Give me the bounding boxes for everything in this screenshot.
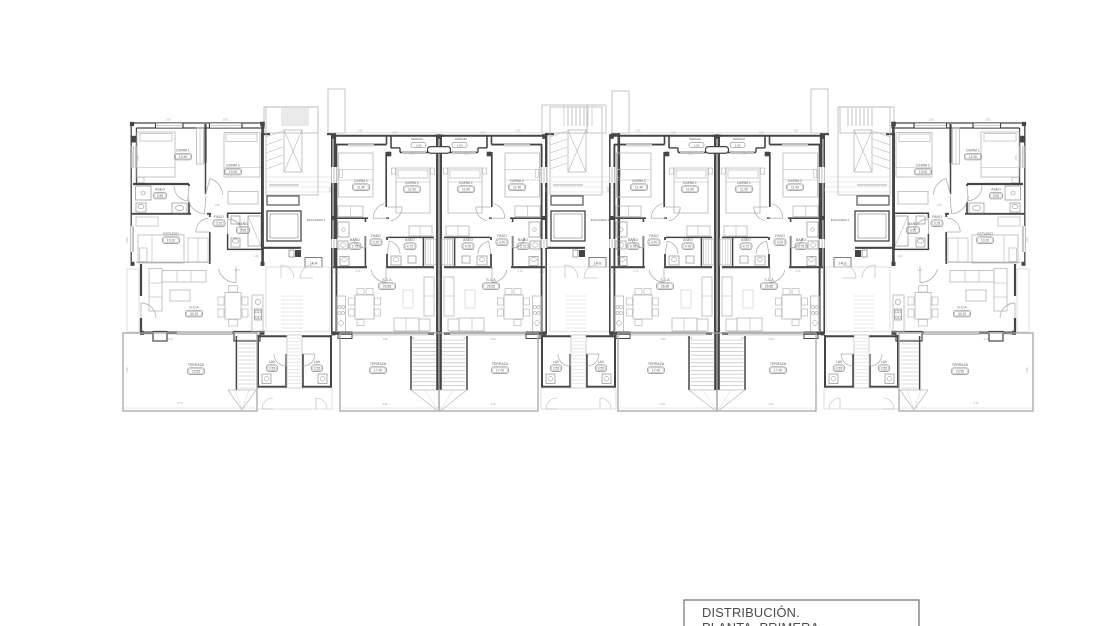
svg-text:3.25: 3.25 bbox=[216, 222, 223, 226]
svg-text:PASO: PASO bbox=[497, 234, 507, 238]
svg-text:3.25: 3.25 bbox=[934, 222, 941, 226]
svg-text:2.00: 2.00 bbox=[671, 132, 676, 135]
svg-text:BAÑO: BAÑO bbox=[350, 237, 360, 242]
svg-text:1.40: 1.40 bbox=[917, 269, 922, 272]
svg-text:ASEO: ASEO bbox=[155, 188, 165, 192]
svg-text:LAV: LAV bbox=[553, 360, 560, 364]
svg-text:DISTRIBUCIÓN.: DISTRIBUCIÓN. bbox=[702, 605, 800, 620]
svg-text:ESTUDIO: ESTUDIO bbox=[163, 232, 179, 236]
svg-text:4.70: 4.70 bbox=[407, 245, 414, 249]
svg-text:11.40: 11.40 bbox=[635, 186, 643, 190]
svg-text:TERRAZA: TERRAZA bbox=[492, 362, 509, 366]
svg-text:TERRAZA: TERRAZA bbox=[188, 363, 205, 367]
svg-text:11.40: 11.40 bbox=[357, 186, 365, 190]
svg-text:4.70: 4.70 bbox=[685, 245, 692, 249]
svg-text:2.00: 2.00 bbox=[481, 132, 486, 135]
svg-text:BAÑO: BAÑO bbox=[908, 221, 918, 226]
svg-text:1.40: 1.40 bbox=[235, 269, 240, 272]
svg-text:PASO: PASO bbox=[932, 215, 942, 219]
svg-text:17.00: 17.00 bbox=[652, 369, 660, 373]
svg-text:TERRAZA: TERRAZA bbox=[689, 137, 701, 141]
svg-text:PASO: PASO bbox=[214, 215, 224, 219]
svg-text:1.40: 1.40 bbox=[254, 255, 259, 258]
svg-text:LAV: LAV bbox=[269, 360, 276, 364]
svg-text:10.20: 10.20 bbox=[167, 239, 175, 243]
svg-text:11.90: 11.90 bbox=[408, 188, 416, 192]
svg-text:3.55: 3.55 bbox=[598, 367, 605, 371]
svg-text:ESCALERA 3: ESCALERA 3 bbox=[307, 218, 326, 222]
svg-text:S.C.A: S.C.A bbox=[957, 306, 967, 310]
svg-text:3.95: 3.95 bbox=[240, 229, 247, 233]
svg-text:ASEO: ASEO bbox=[405, 238, 415, 242]
svg-text:4.00: 4.00 bbox=[329, 187, 332, 192]
svg-text:4.05: 4.05 bbox=[1015, 155, 1018, 160]
svg-text:DORM 2: DORM 2 bbox=[510, 179, 524, 183]
svg-text:3.90: 3.90 bbox=[769, 338, 774, 341]
svg-text:2.40: 2.40 bbox=[742, 153, 747, 156]
svg-text:1.40: 1.40 bbox=[898, 255, 903, 258]
svg-text:11.90: 11.90 bbox=[462, 188, 470, 192]
svg-text:5.40: 5.40 bbox=[383, 403, 388, 406]
svg-text:2.75: 2.75 bbox=[634, 270, 639, 273]
svg-text:3.75: 3.75 bbox=[798, 245, 805, 249]
svg-text:TERRAZA: TERRAZA bbox=[455, 137, 467, 141]
svg-text:1.40: 1.40 bbox=[334, 271, 339, 274]
svg-text:DORM 2: DORM 2 bbox=[226, 164, 240, 168]
svg-text:ASEO: ASEO bbox=[991, 188, 1001, 192]
svg-text:23.55: 23.55 bbox=[956, 370, 964, 374]
svg-text:34.10: 34.10 bbox=[190, 312, 198, 316]
svg-text:1.40: 1.40 bbox=[818, 271, 823, 274]
svg-text:ESCALERA 1: ESCALERA 1 bbox=[831, 218, 850, 222]
svg-text:S.C.A: S.C.A bbox=[486, 278, 496, 282]
svg-text:4.10: 4.10 bbox=[984, 338, 989, 341]
svg-text:4.10: 4.10 bbox=[168, 338, 173, 341]
svg-text:3.55: 3.55 bbox=[269, 367, 276, 371]
svg-text:1.40: 1.40 bbox=[612, 271, 617, 274]
svg-text:TERRAZA: TERRAZA bbox=[370, 362, 387, 366]
svg-text:PASO: PASO bbox=[775, 234, 785, 238]
svg-text:ASEO: ASEO bbox=[463, 238, 473, 242]
svg-text:LAV: LAV bbox=[598, 360, 605, 364]
svg-text:1.00: 1.00 bbox=[457, 144, 463, 148]
svg-text:LAV: LAV bbox=[314, 360, 321, 364]
svg-text:4.90: 4.90 bbox=[126, 367, 129, 372]
svg-text:10.00: 10.00 bbox=[229, 170, 237, 174]
svg-text:5.40: 5.40 bbox=[491, 403, 496, 406]
svg-text:6.75: 6.75 bbox=[178, 402, 183, 405]
svg-text:17.00: 17.00 bbox=[774, 369, 782, 373]
svg-text:3.90: 3.90 bbox=[491, 338, 496, 341]
svg-text:2.75: 2.75 bbox=[518, 270, 523, 273]
svg-text:BAÑO: BAÑO bbox=[518, 237, 528, 242]
svg-text:3.90: 3.90 bbox=[157, 194, 164, 198]
svg-text:BAÑO: BAÑO bbox=[796, 237, 806, 242]
svg-text:26.85: 26.85 bbox=[383, 285, 391, 289]
svg-text:4.70: 4.70 bbox=[465, 245, 472, 249]
svg-text:ESTUDIO: ESTUDIO bbox=[977, 232, 993, 236]
svg-text:2.00: 2.00 bbox=[759, 132, 764, 135]
svg-text:26.85: 26.85 bbox=[661, 285, 669, 289]
svg-text:ASEO: ASEO bbox=[683, 238, 693, 242]
svg-text:11.90: 11.90 bbox=[686, 188, 694, 192]
svg-text:3.20: 3.20 bbox=[651, 241, 658, 245]
svg-text:4.00: 4.00 bbox=[607, 187, 610, 192]
svg-text:1.00: 1.00 bbox=[416, 144, 422, 148]
svg-text:34.10: 34.10 bbox=[958, 312, 966, 316]
svg-text:S.C.A: S.C.A bbox=[660, 278, 670, 282]
svg-text:1.40: 1.40 bbox=[540, 271, 545, 274]
svg-text:1.00: 1.00 bbox=[694, 144, 700, 148]
svg-text:6.75: 6.75 bbox=[974, 402, 979, 405]
svg-text:ESCALERA 2: ESCALERA 2 bbox=[591, 218, 610, 222]
svg-text:PLANTA PRIMERA: PLANTA PRIMERA bbox=[702, 620, 820, 626]
svg-text:12.90: 12.90 bbox=[969, 155, 977, 159]
svg-text:S.C.A: S.C.A bbox=[764, 278, 774, 282]
svg-text:DORM 1: DORM 1 bbox=[683, 181, 697, 185]
svg-text:4.90: 4.90 bbox=[1026, 367, 1029, 372]
svg-text:3.90: 3.90 bbox=[383, 338, 388, 341]
svg-text:23.55: 23.55 bbox=[192, 370, 200, 374]
svg-text:2.40: 2.40 bbox=[410, 153, 415, 156]
svg-text:TERRAZA: TERRAZA bbox=[411, 137, 423, 141]
svg-text:1.50: 1.50 bbox=[937, 204, 942, 207]
svg-text:1.00: 1.00 bbox=[735, 144, 741, 148]
svg-text:3.20: 3.20 bbox=[373, 241, 380, 245]
svg-text:LAV: LAV bbox=[881, 360, 888, 364]
svg-text:S.C.A: S.C.A bbox=[382, 278, 392, 282]
svg-text:TERRAZA: TERRAZA bbox=[952, 363, 969, 367]
svg-text:3.55: 3.55 bbox=[881, 367, 888, 371]
svg-text:3.50: 3.50 bbox=[986, 119, 991, 122]
svg-text:2.80: 2.80 bbox=[636, 130, 641, 133]
svg-text:5.40: 5.40 bbox=[769, 403, 774, 406]
svg-text:11.90: 11.90 bbox=[740, 188, 748, 192]
svg-text:3.20: 3.20 bbox=[499, 241, 506, 245]
svg-text:PASO: PASO bbox=[649, 234, 659, 238]
svg-text:3.55: 3.55 bbox=[836, 367, 843, 371]
svg-text:2.95: 2.95 bbox=[1026, 237, 1029, 242]
svg-text:2.60: 2.60 bbox=[223, 119, 228, 122]
svg-text:12.90: 12.90 bbox=[179, 155, 187, 159]
svg-text:4.05: 4.05 bbox=[137, 155, 140, 160]
svg-text:DORM 1: DORM 1 bbox=[737, 181, 751, 185]
svg-text:2.60: 2.60 bbox=[929, 119, 934, 122]
svg-text:ASEO: ASEO bbox=[741, 238, 751, 242]
svg-text:TERRAZA: TERRAZA bbox=[770, 362, 787, 366]
svg-text:2.75: 2.75 bbox=[356, 270, 361, 273]
svg-text:2.95: 2.95 bbox=[126, 237, 129, 242]
svg-text:TERRAZA: TERRAZA bbox=[733, 137, 745, 141]
svg-text:2.00: 2.00 bbox=[393, 132, 398, 135]
svg-text:S.C.A: S.C.A bbox=[189, 306, 199, 310]
svg-text:11.40: 11.40 bbox=[513, 186, 521, 190]
svg-text:2.80: 2.80 bbox=[358, 130, 363, 133]
svg-text:DORM 2: DORM 2 bbox=[916, 164, 930, 168]
svg-text:3.90: 3.90 bbox=[661, 338, 666, 341]
svg-text:DORM 1: DORM 1 bbox=[966, 149, 980, 153]
svg-text:17.00: 17.00 bbox=[496, 369, 504, 373]
svg-text:4.00: 4.00 bbox=[823, 187, 826, 192]
svg-text:1.50: 1.50 bbox=[215, 204, 220, 207]
svg-text:3.75: 3.75 bbox=[352, 245, 359, 249]
svg-text:3.55: 3.55 bbox=[314, 367, 321, 371]
svg-text:4.00: 4.00 bbox=[545, 187, 548, 192]
svg-text:3.75: 3.75 bbox=[630, 245, 637, 249]
svg-text:2.80: 2.80 bbox=[516, 130, 521, 133]
svg-text:26.85: 26.85 bbox=[487, 285, 495, 289]
svg-text:DORM 1: DORM 1 bbox=[405, 181, 419, 185]
svg-text:11.40: 11.40 bbox=[791, 186, 799, 190]
svg-text:DORM 1: DORM 1 bbox=[176, 149, 190, 153]
svg-text:2.40: 2.40 bbox=[688, 153, 693, 156]
svg-text:DORM 2: DORM 2 bbox=[354, 179, 368, 183]
svg-text:LAV: LAV bbox=[836, 360, 843, 364]
svg-text:3.90: 3.90 bbox=[993, 194, 1000, 198]
svg-text:4.70: 4.70 bbox=[743, 245, 750, 249]
svg-text:3.20: 3.20 bbox=[777, 241, 784, 245]
svg-text:3.95: 3.95 bbox=[910, 229, 917, 233]
svg-text:2.75: 2.75 bbox=[796, 270, 801, 273]
svg-text:TERRAZA: TERRAZA bbox=[648, 362, 665, 366]
svg-text:2.40: 2.40 bbox=[464, 153, 469, 156]
svg-text:DORM 2: DORM 2 bbox=[788, 179, 802, 183]
svg-text:3.55: 3.55 bbox=[553, 367, 560, 371]
svg-text:3.50: 3.50 bbox=[166, 119, 171, 122]
svg-text:17.00: 17.00 bbox=[374, 369, 382, 373]
svg-text:DORM 1: DORM 1 bbox=[459, 181, 473, 185]
svg-text:5.40: 5.40 bbox=[661, 403, 666, 406]
svg-text:DORM 2: DORM 2 bbox=[632, 179, 646, 183]
svg-text:10.00: 10.00 bbox=[919, 170, 927, 174]
svg-text:BAÑO: BAÑO bbox=[628, 237, 638, 242]
svg-text:2.80: 2.80 bbox=[794, 130, 799, 133]
svg-text:3.75: 3.75 bbox=[520, 245, 527, 249]
svg-text:PASO: PASO bbox=[371, 234, 381, 238]
svg-text:10.20: 10.20 bbox=[981, 239, 989, 243]
svg-text:26.85: 26.85 bbox=[765, 285, 773, 289]
